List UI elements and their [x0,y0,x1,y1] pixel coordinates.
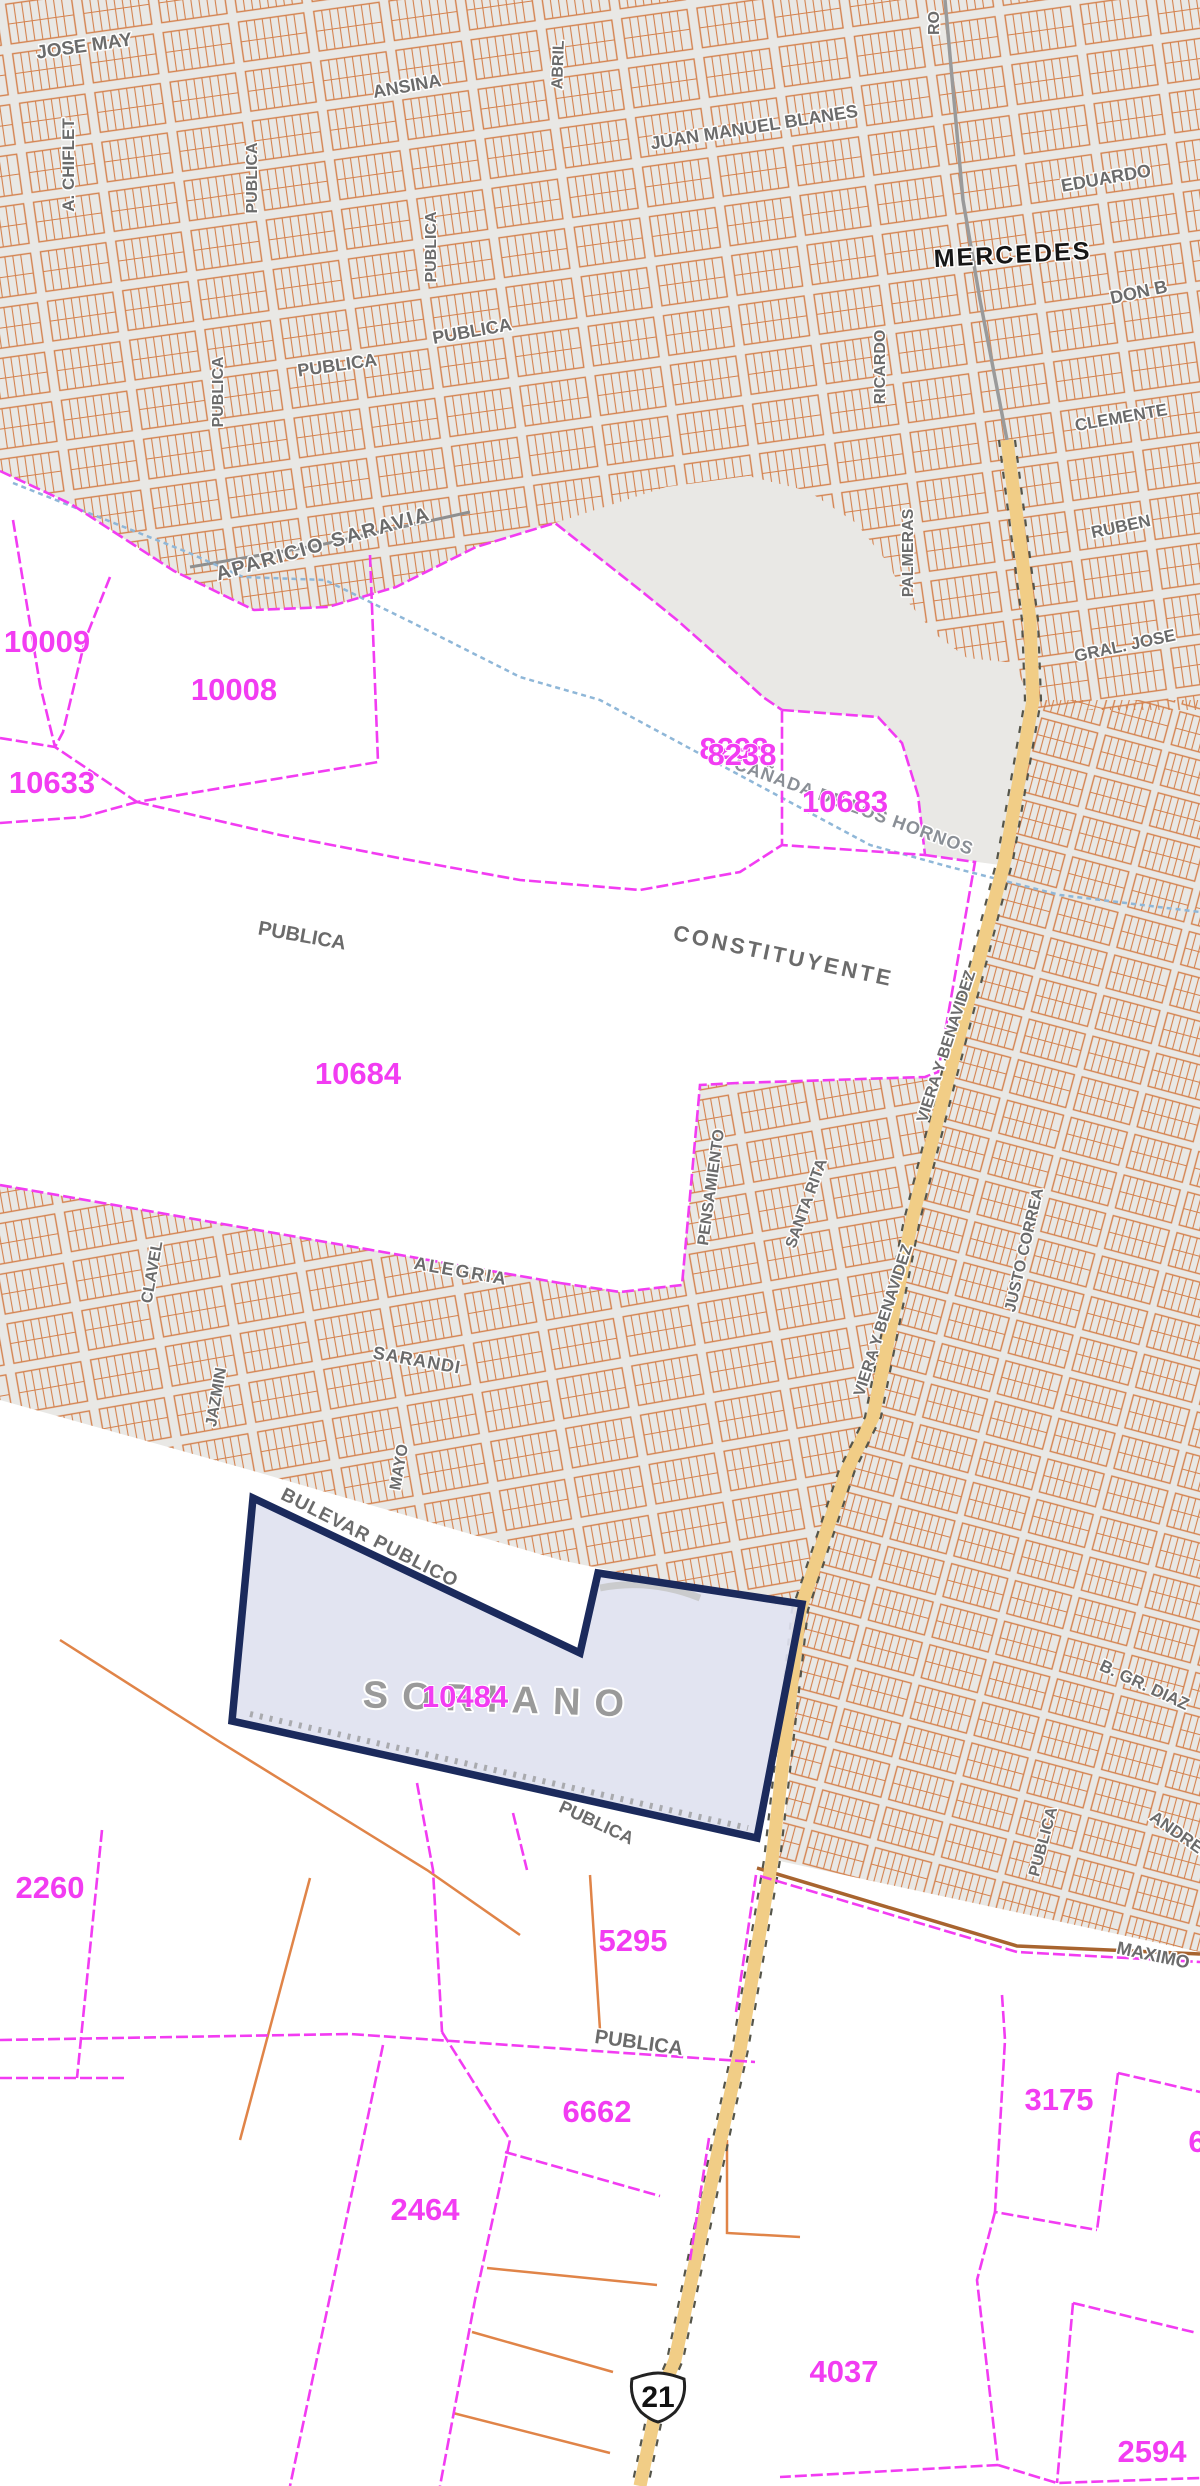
parcel-number: 3175 [1025,2082,1094,2117]
street-label: PALMERAS [900,508,917,597]
street-label: PUBLICA [423,211,440,283]
map-viewport[interactable]: JOSE MAY A. CHIFLET ANSINA ABRIL JUAN MA… [0,0,1200,2486]
parcel-number: 6662 [563,2094,632,2129]
parcel-number: 10684 [315,1056,402,1091]
street-label: RICARDO [872,330,889,405]
parcel-number: 6 [1188,2124,1200,2159]
parcel-number: 4037 [810,2354,879,2389]
parcel-number: 10484 [422,1679,509,1714]
parcel-number: 2594 [1118,2434,1188,2469]
parcel-number: 10683 [802,784,888,819]
street-label: A. CHIFLET [59,118,78,212]
parcel-number: 10008 [191,672,277,707]
parcel-number: 8238 [708,737,777,772]
parcel-number: 5295 [599,1923,668,1958]
route-shield-number: 21 [641,2381,674,2414]
street-label: PUBLICA [244,142,261,214]
parcel-number: 2260 [16,1870,85,1905]
map-canvas[interactable]: JOSE MAY A. CHIFLET ANSINA ABRIL JUAN MA… [0,0,1200,2486]
parcel-number: 2464 [391,2192,461,2227]
parcel-number: 10633 [9,765,95,800]
street-label: PUBLICA [210,356,227,428]
street-label: RO [926,11,943,35]
parcel-number: 10009 [4,624,90,659]
street-label: ABRIL [549,40,568,90]
